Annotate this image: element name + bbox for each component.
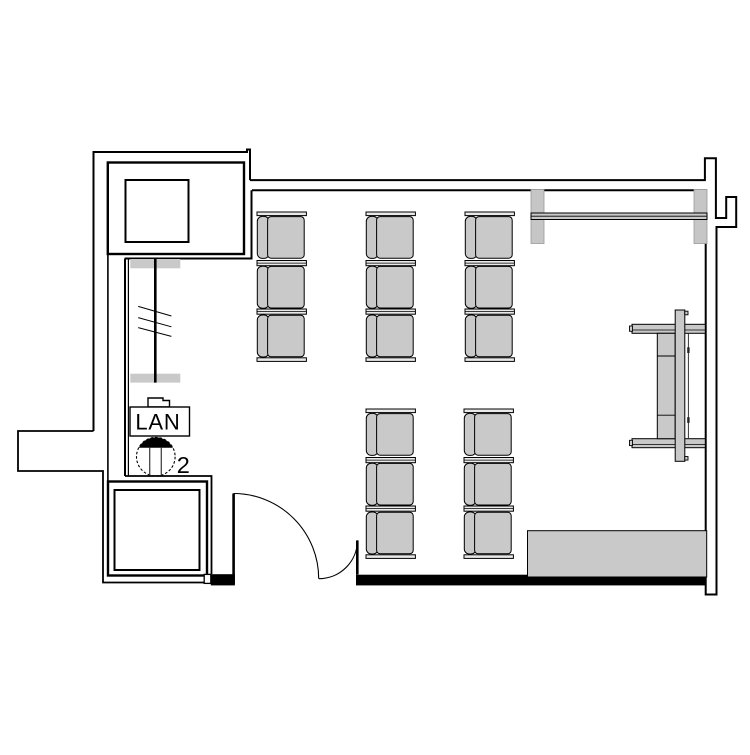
svg-text:LAN: LAN — [135, 410, 180, 435]
svg-text:2: 2 — [177, 452, 190, 478]
